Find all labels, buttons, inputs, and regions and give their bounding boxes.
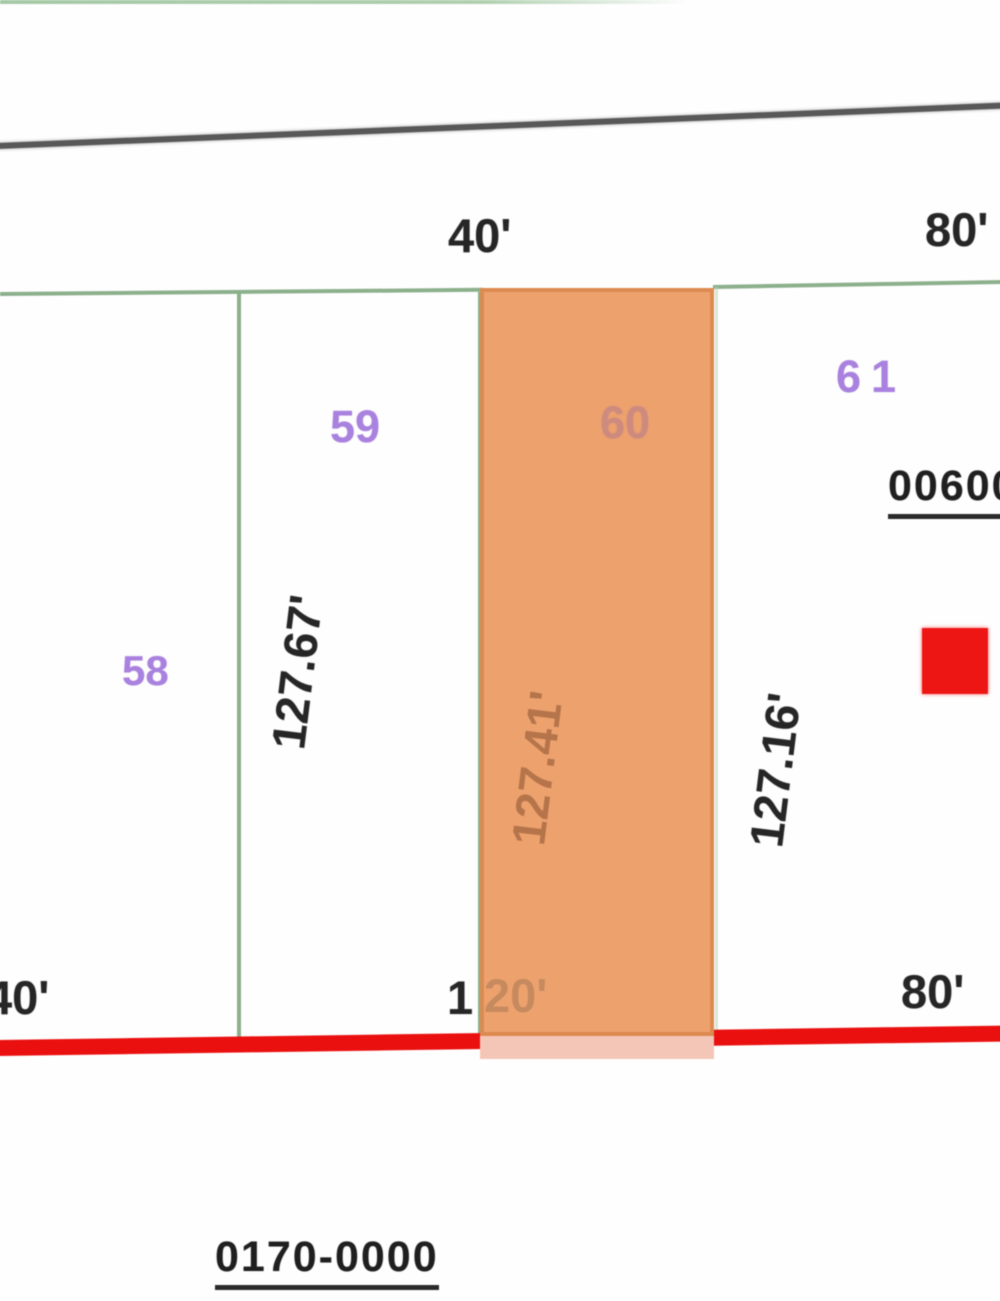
lot-label-58: 58 bbox=[122, 650, 169, 692]
red-square-marker[interactable] bbox=[922, 628, 988, 694]
dimension-label-top-80: 80' bbox=[925, 206, 988, 253]
parcel-id-0170-0000: 0170-0000 bbox=[215, 1236, 439, 1290]
dimension-label-bottom-120-suffix: 20' bbox=[484, 972, 547, 1019]
dimension-label-bottom-40: 40' bbox=[0, 974, 49, 1021]
dimension-label-127-67: 127.67' bbox=[264, 592, 330, 752]
dimension-label-127-16: 127.16' bbox=[742, 690, 808, 850]
dimension-label-bottom-80: 80' bbox=[901, 968, 964, 1015]
parcel-boundary-top-right bbox=[713, 280, 1000, 289]
parcel-boundary-lot58-59 bbox=[237, 292, 241, 1048]
dimension-label-top-40: 40' bbox=[448, 212, 511, 259]
parcel-60-bottom-tint bbox=[480, 1036, 714, 1059]
road-centerline bbox=[0, 102, 1000, 149]
map-canvas[interactable]: 40' 80' 58 59 60 61 00600 0170-0000 127.… bbox=[0, 0, 1000, 1301]
dimension-label-bottom-120-prefix: 1 bbox=[447, 974, 473, 1021]
parcel-boundary-top-left bbox=[0, 288, 483, 296]
parcel-60-highlight[interactable] bbox=[480, 288, 714, 1036]
top-boundary-green-strip bbox=[0, 0, 690, 4]
lot-label-60: 60 bbox=[600, 400, 650, 445]
parcel-id-0060: 00600 bbox=[888, 465, 1000, 519]
parcel-boundary-lot60-61 bbox=[715, 287, 718, 1042]
lot-label-61: 61 bbox=[836, 354, 906, 399]
map-viewport[interactable]: 40' 80' 58 59 60 61 00600 0170-0000 127.… bbox=[0, 0, 1000, 1301]
lot-label-59: 59 bbox=[330, 404, 380, 449]
